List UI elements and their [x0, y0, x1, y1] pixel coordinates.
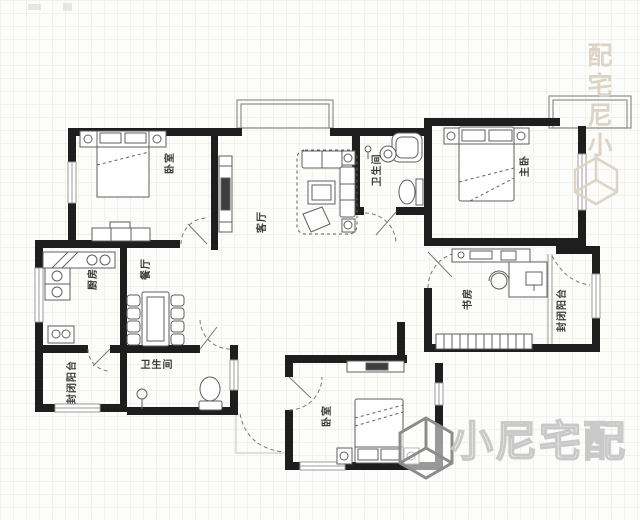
- dining-table: [127, 292, 184, 346]
- room-label-living-room: 客厅: [258, 211, 268, 233]
- floor-plan-image: 卧室 客厅 卫生间 主卧 书房 封闭阳台 厨房 餐厅 封闭阳台 卫生间 卧室 配…: [0, 0, 640, 520]
- watermark-vertical-brand-text: 配宅尼小: [585, 42, 610, 162]
- room-label-bathroom-bottom: 卫生间: [141, 361, 174, 371]
- room-label-master-bedroom: 主卧: [521, 155, 531, 177]
- room-label-bedroom-top-left: 卧室: [166, 152, 176, 174]
- room-label-bedroom-bottom: 卧室: [323, 405, 333, 427]
- watermark-cube-bottom-icon: [400, 418, 452, 478]
- bed-top-left: [80, 131, 166, 241]
- room-label-study: 书房: [464, 288, 474, 310]
- room-label-dining-room: 餐厅: [142, 258, 152, 280]
- room-label-kitchen: 厨房: [89, 268, 99, 290]
- room-label-balcony-right: 封闭阳台: [558, 288, 568, 332]
- bathroom-bottom-fixtures: [137, 377, 222, 410]
- bed-master: [444, 127, 529, 201]
- room-label-bathroom-top: 卫生间: [373, 154, 383, 187]
- kitchen-fixtures: [43, 252, 115, 343]
- room-label-balcony-left: 封闭阳台: [68, 360, 78, 404]
- edge-artifacts: [28, 3, 72, 11]
- study-furniture: [436, 249, 547, 349]
- sofa-set-living: [219, 150, 357, 234]
- watermark-bottom-brand-text: 小尼宅配: [451, 421, 627, 463]
